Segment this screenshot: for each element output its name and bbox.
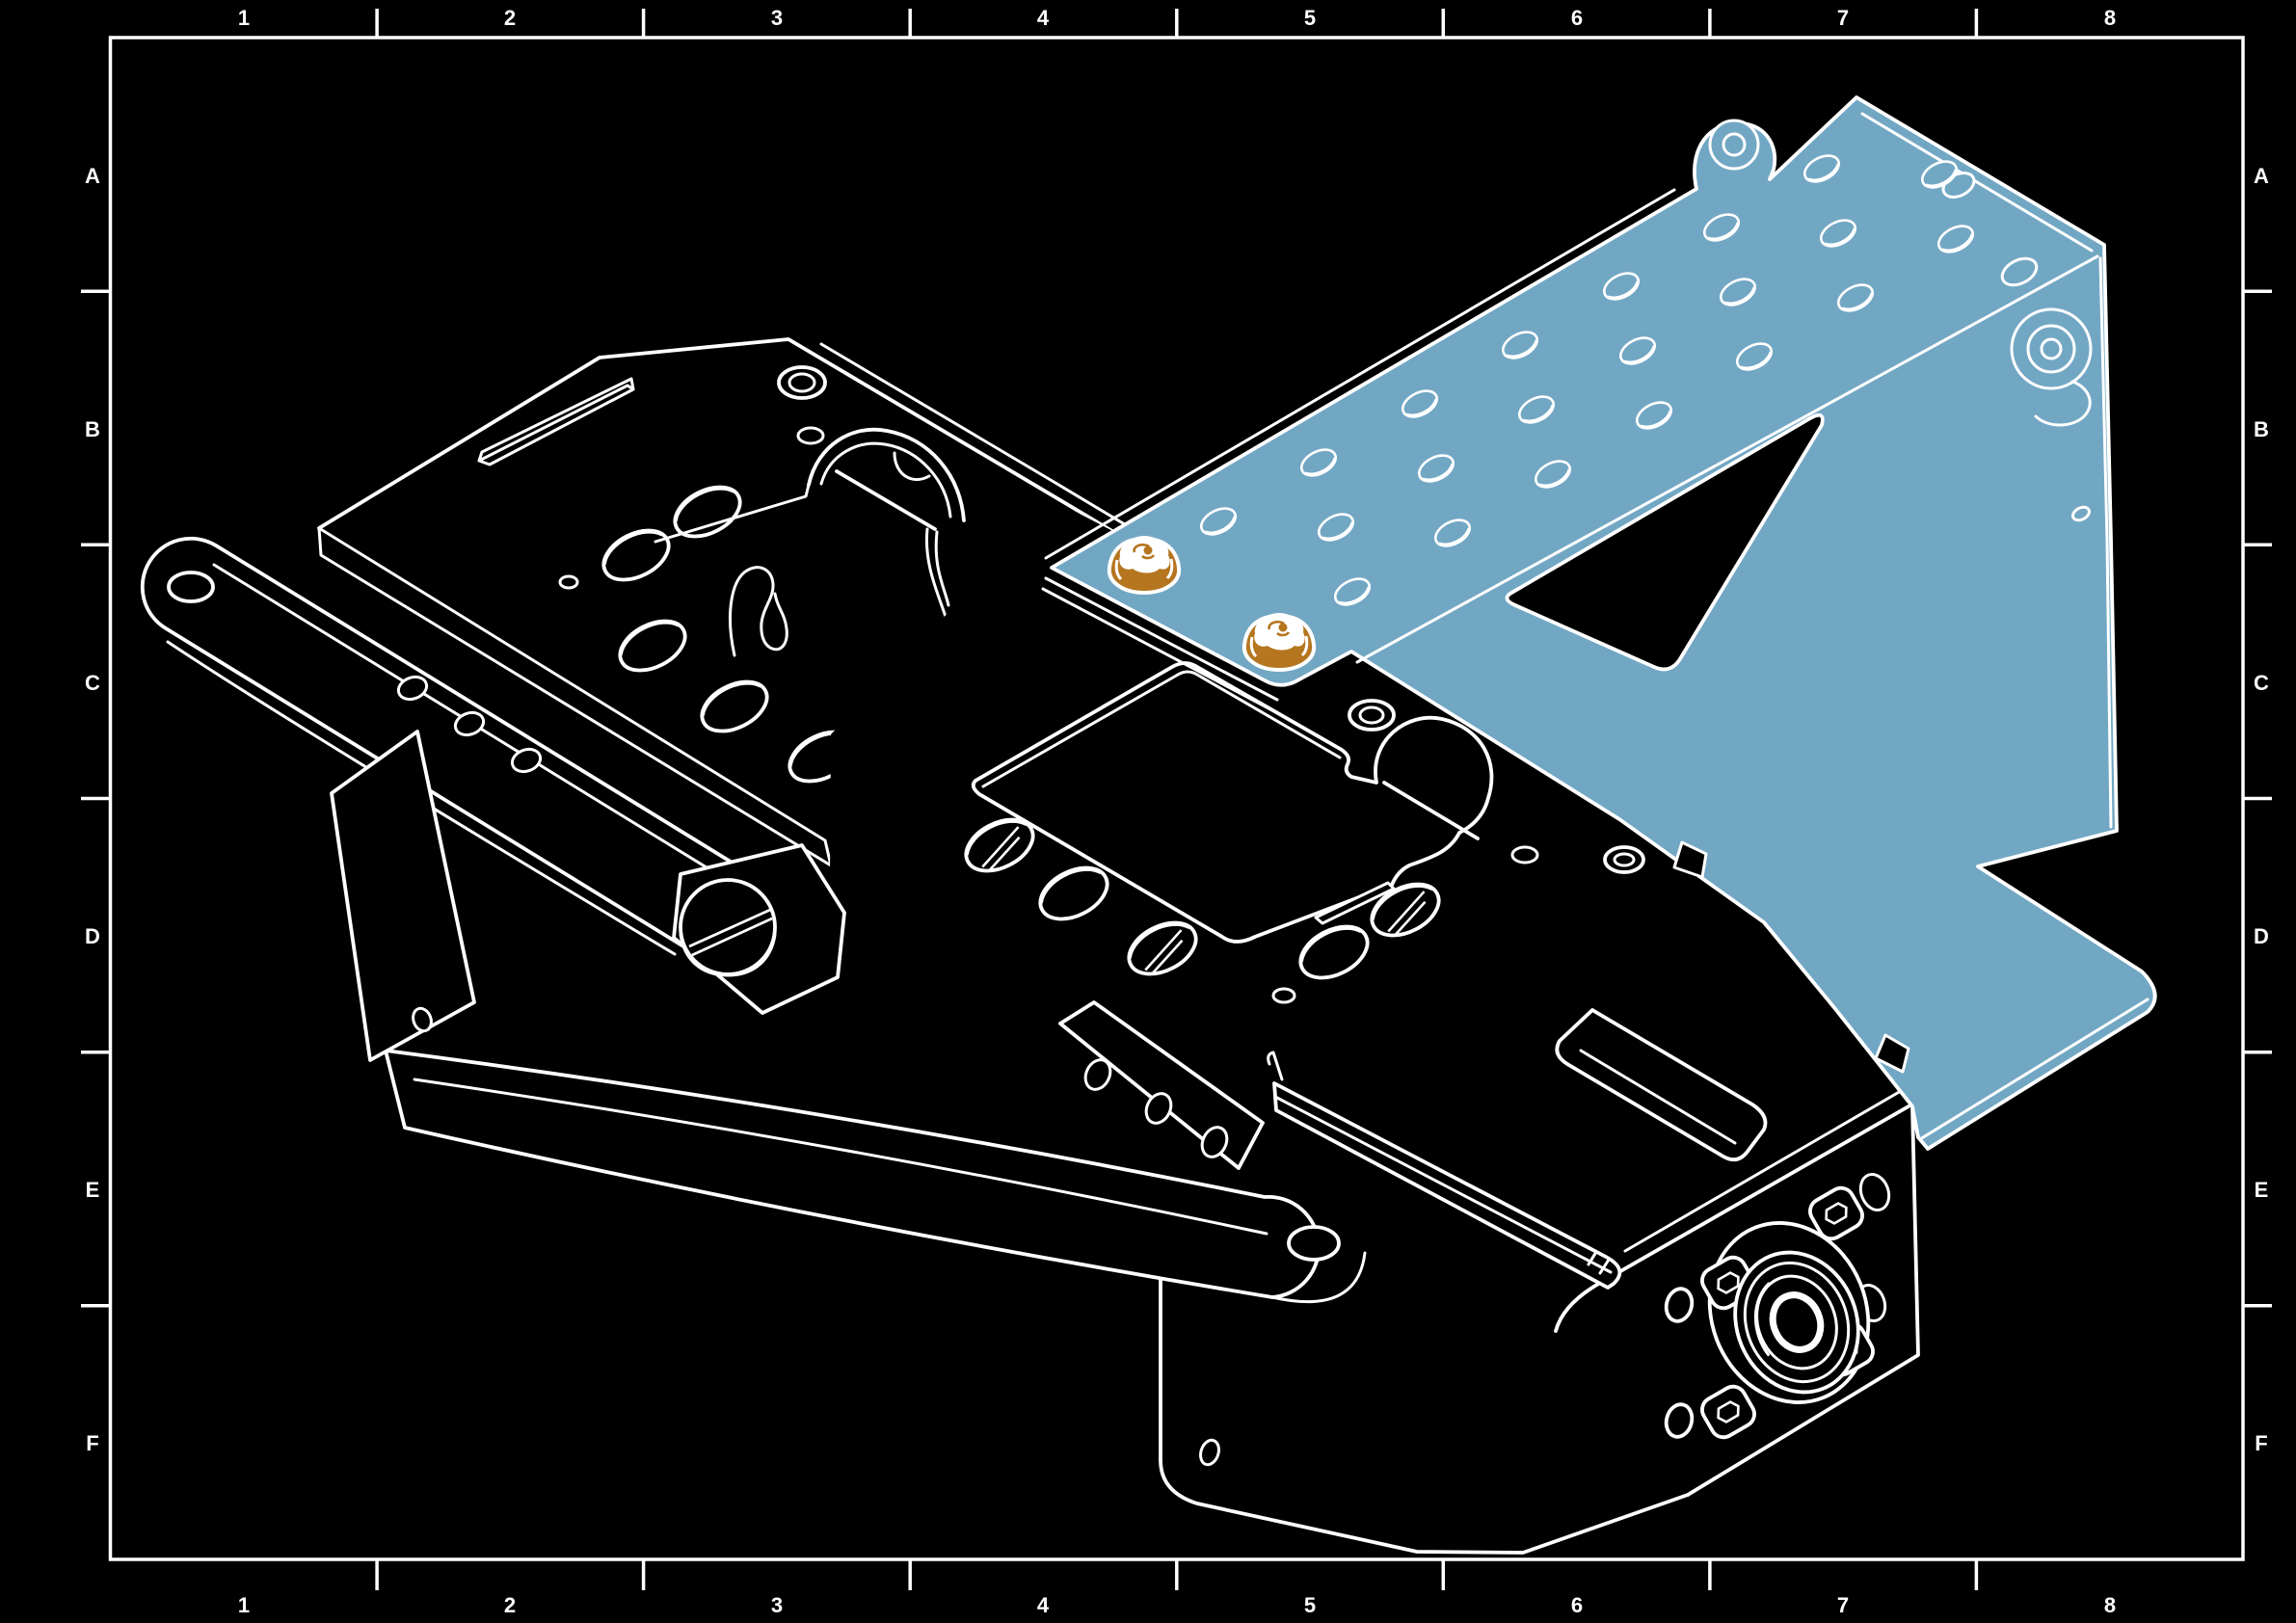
svg-text:7: 7 — [1837, 6, 1849, 30]
svg-text:1: 1 — [238, 1593, 250, 1617]
svg-text:A: A — [85, 164, 100, 188]
svg-text:4: 4 — [1037, 6, 1050, 30]
svg-text:8: 8 — [2104, 6, 2116, 30]
svg-text:3: 3 — [771, 6, 783, 30]
svg-text:D: D — [85, 924, 100, 948]
svg-text:4: 4 — [1037, 1593, 1050, 1617]
svg-text:3: 3 — [771, 1593, 783, 1617]
svg-text:5: 5 — [1304, 6, 1316, 30]
svg-text:F: F — [2255, 1431, 2267, 1455]
svg-text:B: B — [2254, 417, 2269, 441]
svg-text:5: 5 — [1304, 1593, 1316, 1617]
svg-text:2: 2 — [504, 6, 516, 30]
svg-text:A: A — [2254, 164, 2269, 188]
svg-text:E: E — [86, 1178, 100, 1202]
svg-text:6: 6 — [1571, 1593, 1583, 1617]
svg-text:2: 2 — [504, 1593, 516, 1617]
svg-text:6: 6 — [1571, 6, 1583, 30]
svg-text:E: E — [2255, 1178, 2269, 1202]
svg-text:C: C — [85, 671, 100, 695]
svg-text:B: B — [85, 417, 100, 441]
svg-text:C: C — [2254, 671, 2269, 695]
svg-text:8: 8 — [2104, 1593, 2116, 1617]
svg-text:7: 7 — [1837, 1593, 1849, 1617]
svg-text:F: F — [86, 1431, 98, 1455]
svg-text:1: 1 — [238, 6, 250, 30]
svg-text:D: D — [2254, 924, 2269, 948]
